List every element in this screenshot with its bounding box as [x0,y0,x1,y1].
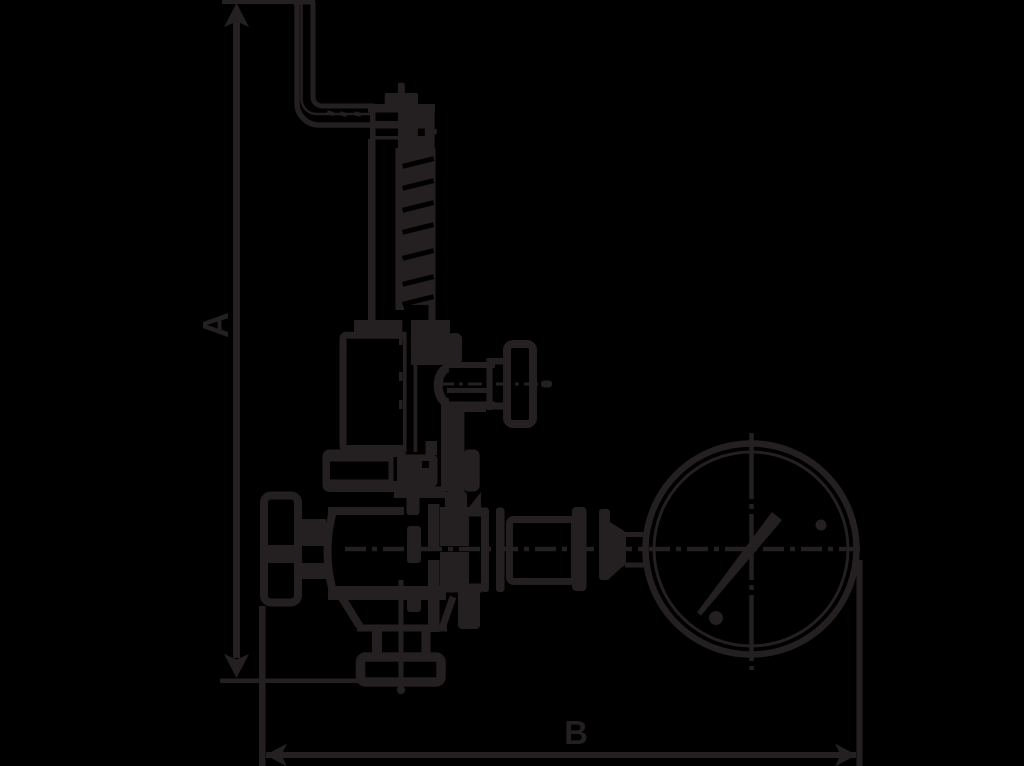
svg-text:A: A [195,312,236,338]
svg-text:B: B [564,714,588,751]
